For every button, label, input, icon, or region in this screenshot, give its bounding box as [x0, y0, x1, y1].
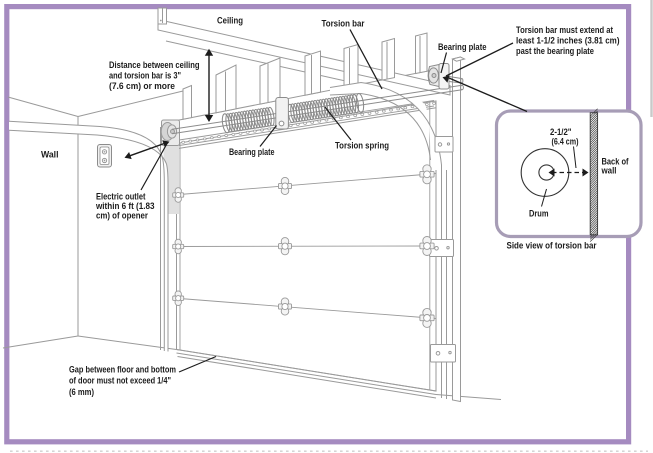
svg-text:least 1-1/2 inches (3.81 cm): least 1-1/2 inches (3.81 cm) [516, 35, 620, 46]
svg-text:cm) of opener: cm) of opener [96, 210, 148, 221]
svg-text:Ceiling: Ceiling [217, 15, 243, 26]
svg-text:Gap between floor and bottom: Gap between floor and bottom [69, 364, 176, 375]
svg-text:and torsion bar is 3": and torsion bar is 3" [109, 70, 181, 81]
svg-text:(7.6 cm) or more: (7.6 cm) or more [109, 80, 175, 91]
svg-text:(6.4 cm): (6.4 cm) [552, 135, 579, 146]
svg-text:(6 mm): (6 mm) [69, 386, 94, 397]
svg-text:Torsion bar must extend at: Torsion bar must extend at [516, 24, 613, 35]
svg-text:Distance between ceiling: Distance between ceiling [109, 59, 200, 70]
svg-text:Bearing plate: Bearing plate [438, 41, 487, 52]
svg-text:Torsion spring: Torsion spring [335, 139, 389, 150]
svg-text:past the bearing plate: past the bearing plate [516, 45, 594, 56]
svg-text:of door must not exceed 1/4": of door must not exceed 1/4" [69, 375, 171, 386]
svg-text:Bearing plate: Bearing plate [229, 146, 275, 157]
svg-text:Side view of torsion bar: Side view of torsion bar [507, 239, 597, 250]
svg-text:Torsion bar: Torsion bar [322, 18, 365, 29]
svg-text:wall: wall [601, 165, 617, 176]
svg-text:Wall: Wall [41, 149, 59, 160]
svg-text:Drum: Drum [529, 208, 549, 219]
